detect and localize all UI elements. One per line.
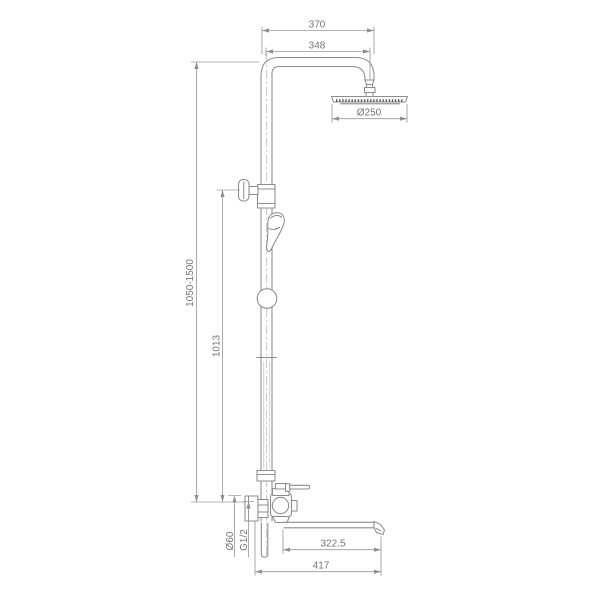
dim-overall-reach: 417 — [255, 522, 381, 576]
diverter-knob — [239, 180, 276, 209]
dim-250-arrow-left — [332, 117, 339, 121]
dim-height-range-label: 1050-1500 — [185, 259, 196, 307]
dim-g12-label: G1/2 — [239, 529, 250, 551]
dim-1013-arrow-top — [220, 190, 224, 197]
valve-cap-circle — [272, 497, 288, 513]
hex-nut — [258, 500, 268, 518]
diverter-tab — [292, 501, 298, 512]
knob-collar — [258, 185, 276, 209]
dim-370-arrow-left — [262, 28, 269, 32]
dim-322-label: 322.5 — [320, 539, 345, 550]
knob-stem — [249, 187, 258, 195]
dim-1013-arrow-bottom — [220, 495, 224, 502]
dim-60-arrow — [232, 496, 236, 503]
head-connector-taper — [365, 80, 374, 85]
slider-ball — [257, 289, 277, 309]
dim-height-range-arrow-top — [194, 62, 198, 69]
tub-spout — [284, 521, 385, 534]
product-drawing — [239, 53, 408, 557]
dim-417-arrow-right — [374, 570, 381, 574]
cartridge-cap — [276, 484, 287, 490]
head-connector-stem-lower — [366, 93, 373, 97]
head-connector-nut — [365, 88, 376, 93]
dim-417-label: 417 — [313, 561, 330, 572]
riser-and-arm-inner-edge — [272, 67, 365, 522]
spout-tube — [284, 522, 377, 528]
dim-322-arrow-left — [283, 548, 290, 552]
dim-height-range: 1050-1500 — [185, 62, 259, 502]
hand-shower-body — [267, 213, 285, 252]
riser-mixer-collar — [257, 471, 275, 482]
dim-348-lines — [266, 48, 370, 80]
dim-height-range-lines — [191, 62, 259, 502]
dim-1013-label: 1013 — [212, 334, 223, 357]
dim-322-arrow-right — [374, 548, 381, 552]
dimension-annotations: 370 348 Ø250 1050-1500 1013 — [185, 20, 407, 576]
dim-348: 348 — [266, 41, 370, 80]
lever-handle — [290, 485, 310, 489]
dim-417-arrow-left — [255, 570, 262, 574]
dim-370-arrow-right — [367, 28, 374, 32]
dim-head-diameter: Ø250 — [332, 104, 407, 123]
dim-spout-reach: 322.5 — [283, 530, 381, 576]
dim-370-label: 370 — [309, 20, 326, 31]
technical-drawing-canvas: 370 348 Ø250 1050-1500 1013 — [0, 0, 600, 600]
riser-and-arm-outer-edge — [261, 58, 374, 522]
dim-348-arrow-right — [363, 49, 370, 53]
dim-348-arrow-left — [266, 49, 273, 53]
mixer-valve — [245, 484, 310, 523]
dim-riser-height: 1013 — [212, 190, 241, 502]
dim-348-label: 348 — [309, 41, 326, 52]
hand-shower — [267, 213, 285, 252]
spout-outlet-cone — [273, 517, 290, 523]
dim-250-arrow-right — [400, 117, 407, 121]
dim-height-range-arrow-bottom — [194, 495, 198, 502]
dim-250-label: Ø250 — [357, 108, 382, 119]
shower-column-drawing: 370 348 Ø250 1050-1500 1013 — [0, 0, 600, 600]
dim-322-lines — [283, 530, 381, 576]
dim-60-label: Ø60 — [225, 531, 236, 550]
